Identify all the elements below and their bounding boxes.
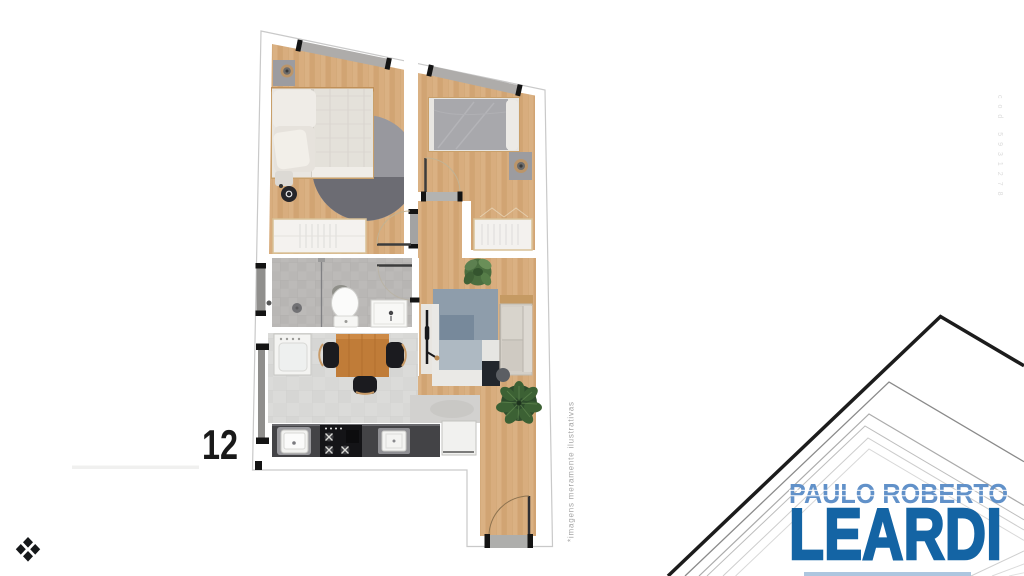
svg-text:cod 5931278: cod 5931278 [996, 95, 1003, 201]
svg-text:*imagens meramente ilustrativa: *imagens meramente ilustrativas [567, 401, 576, 542]
svg-text:12: 12 [202, 421, 238, 468]
svg-text:LEARDI: LEARDI [789, 495, 1002, 575]
